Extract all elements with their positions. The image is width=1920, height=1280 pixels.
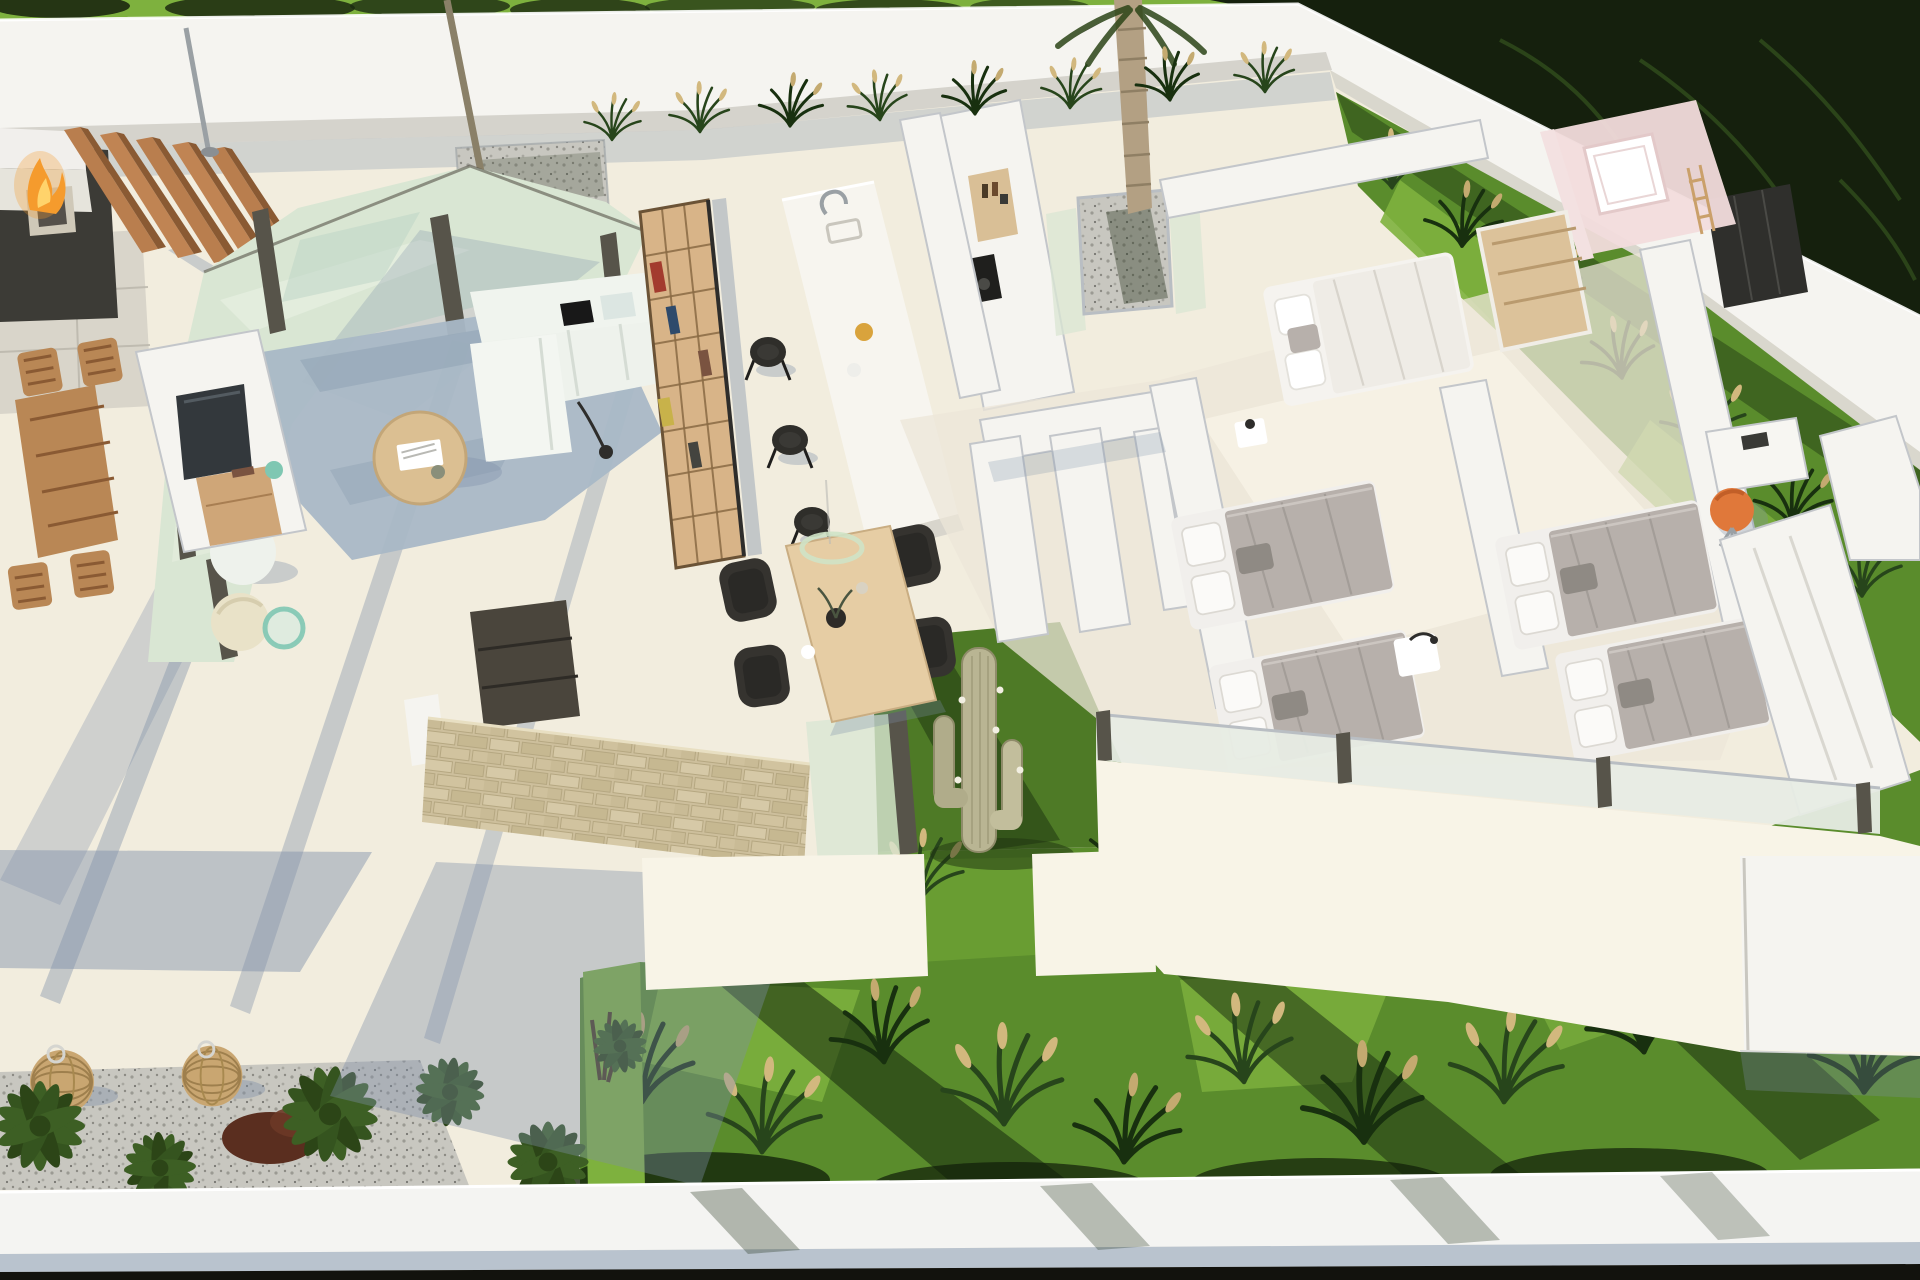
render-stage: Aerial 3D dollhouse render of a modern s… — [0, 0, 1920, 1280]
dining-chair — [732, 643, 792, 710]
terrace-wall-block — [1740, 856, 1920, 1052]
desk — [1706, 418, 1808, 492]
sofa-pillow — [600, 292, 636, 320]
teal-lamp — [265, 461, 283, 479]
pouf-cream — [211, 593, 269, 651]
floorplan-render: Aerial 3D dollhouse render of a modern s… — [0, 0, 1920, 1280]
orange-chair — [1710, 488, 1754, 532]
gold-bowl — [855, 323, 873, 341]
corner-glass — [806, 714, 900, 862]
sofa-chaise — [470, 334, 572, 462]
media-unit — [470, 600, 580, 728]
terrace-slab — [642, 854, 928, 990]
bathtub — [1584, 134, 1668, 214]
tv-panel — [176, 384, 252, 480]
